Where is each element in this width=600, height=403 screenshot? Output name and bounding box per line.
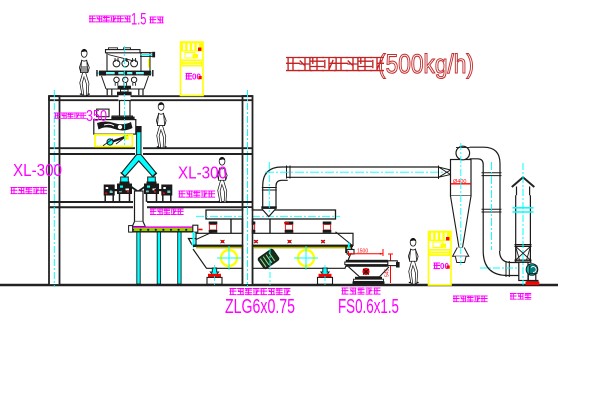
svg-text:XL-300: XL-300 bbox=[178, 163, 227, 183]
svg-text:XL-300: XL-300 bbox=[13, 160, 62, 180]
svg-text:Ø400: Ø400 bbox=[453, 179, 466, 185]
svg-text:1.5: 1.5 bbox=[131, 11, 147, 29]
svg-text:1500: 1500 bbox=[357, 248, 368, 254]
svg-text:ZLG6x0.75: ZLG6x0.75 bbox=[225, 296, 295, 318]
svg-text:(500kg/h): (500kg/h) bbox=[378, 49, 474, 79]
svg-text:FS0.6x1.5: FS0.6x1.5 bbox=[338, 296, 399, 318]
svg-text:350: 350 bbox=[86, 108, 107, 125]
svg-text:545: 545 bbox=[384, 268, 390, 277]
